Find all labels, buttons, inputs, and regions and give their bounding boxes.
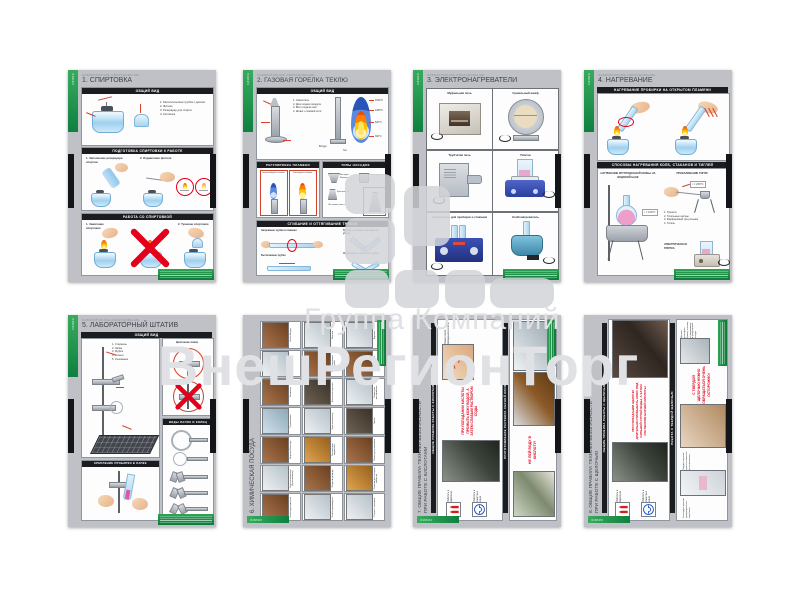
part-item: 4. Колпачок — [160, 112, 210, 116]
burner-tall-base-icon — [330, 139, 346, 144]
section-preparation: ПОДГОТОВКА СПИРТОВКИ К РАБОТЕ 1. Заполне… — [81, 147, 214, 211]
test-tube-icon — [451, 225, 458, 239]
temp-tick — [369, 122, 374, 123]
goggles-label: Работать в защитных очках — [642, 485, 652, 502]
watermark-company-line: Группа Компаний — [304, 303, 560, 337]
poster-spirit-lamp: ХИМИЯ ЛАБОРАТОРНОЕ ОБОРУДОВАНИЕ 1. СПИРТ… — [68, 70, 216, 282]
series-edge-label: ХИМИЯ — [588, 73, 591, 85]
weighing-photo — [680, 338, 710, 364]
edge-tab — [413, 399, 419, 453]
glassware-item: Склянки для сыпучих веществ — [344, 465, 385, 493]
step-label: Нагревание трубки в пламени — [261, 229, 303, 232]
section-general-view: ОБЩИЙ ВИД 1. Смеситель 2. Диск подачи во… — [256, 87, 389, 160]
gloves-pictogram — [446, 502, 461, 517]
series-edge-label: ХИМИЯ — [591, 518, 603, 521]
glassware-photo — [304, 437, 331, 463]
section-general-view: ОБЩИЙ ВИД 1. Металлическая трубка с диск… — [81, 87, 214, 146]
poster-title-line2: ПРИ РАБОТЕ С ЩЕЛОЧЬЮ — [595, 451, 600, 513]
carbonate-caption: На воздухе щелочи превращаются в карбона… — [683, 498, 692, 518]
glassware-item: Колба коническая (Эрленмейера) — [260, 465, 301, 493]
series-edge-band: ХИМИЯ — [584, 70, 594, 132]
poster-title: 6. ХИМИЧЕСКАЯ ПОСУДА — [250, 438, 256, 513]
clamp-stem — [183, 475, 208, 479]
hand-icon — [160, 172, 175, 182]
temperature-badge: t = 100°C — [642, 209, 658, 216]
section-flame-adjust: РЕГУЛИРОВКА ПЛАМЕНИ Несветящееся пламя С… — [256, 161, 320, 218]
power-cord-icon — [431, 263, 443, 270]
goggles-pictogram — [641, 502, 656, 517]
leader-line — [122, 425, 131, 429]
leader-line — [98, 96, 112, 100]
vent-grille — [444, 168, 456, 178]
gloves-pictogram — [615, 502, 630, 517]
rotate-arrow-icon — [287, 239, 297, 252]
leader-line — [261, 122, 270, 123]
series-edge-band: ХИМИЯ — [417, 516, 459, 523]
alkali-bottle-photo — [680, 470, 726, 496]
ring-stem — [189, 438, 208, 442]
series-edge-label: ХИМИЯ — [247, 73, 250, 85]
lamp-vessel-icon — [607, 139, 629, 155]
section-band: РАБОТА С ТВЕРДОЙ ЩЕЛОЧЬЮ — [670, 323, 675, 513]
edge-tab — [726, 154, 732, 208]
step-label: Вытягивание трубки — [261, 254, 301, 257]
blue-flame-icon — [270, 183, 277, 199]
clamp-stem — [185, 507, 208, 511]
glassware-label: Тигель — [373, 417, 376, 426]
series-edge-label: ХИМИЯ — [72, 318, 75, 330]
method-label: ЭЛЕКТРИЧЕСКАЯ ПЛИТКА — [664, 243, 692, 250]
furnace-tube — [467, 175, 482, 184]
glassware-label: Мерный цилиндр — [331, 469, 334, 489]
method-label: ПРОКАЛИВАНИЕ ТИГЛЯ — [664, 172, 720, 176]
test-tube-icon — [459, 225, 466, 239]
dial-knob — [533, 189, 538, 194]
section-clamp-types: ВИДЫ ЛАПОК И КОЛЕЦ — [162, 418, 214, 521]
glassware-item: Колба грушевидная — [302, 493, 343, 521]
lamp-cap-illustration — [134, 114, 149, 127]
series-edge-label: ХИМИЯ — [72, 73, 75, 85]
ring-icon — [110, 401, 123, 414]
section-band: РЕГУЛИРОВКА ПЛАМЕНИ — [257, 162, 319, 168]
poster-title-line2: ПРИ РАБОТЕ С КИСЛОТАМИ — [424, 447, 429, 513]
footer-lines — [720, 322, 725, 364]
flame-icon — [101, 240, 107, 249]
temperature-badge: t = 200°C — [690, 181, 706, 188]
step-label: 2. Поджигание фитиля — [140, 156, 176, 160]
gloves-label: Работать в перчатках — [447, 485, 453, 502]
glassware-photo — [304, 494, 331, 520]
stand-rod-icon — [102, 347, 104, 435]
heater-label: Сушильный шкаф — [493, 89, 558, 95]
section-band: КРЕПЛЕНИЕ ПРОБИРКИ В ЛАПКЕ — [82, 461, 159, 467]
ring-stem — [187, 457, 208, 461]
glassware-label: Кристаллизатор — [331, 412, 334, 430]
gas-label: Газ — [343, 149, 347, 152]
display-strip — [453, 242, 465, 245]
cabinet-stand — [513, 135, 539, 141]
goggles-icon — [473, 503, 486, 516]
method-label: НАГРЕВАНИЕ КРУГЛОДОННОЙ КОЛБЫ НА ВОДЯНОЙ… — [600, 172, 656, 179]
series-edge-label: ХИМИЯ — [420, 518, 432, 521]
temp-label: 1540°C — [375, 99, 383, 102]
publisher-footer — [718, 320, 727, 366]
burner-top-icon — [270, 98, 279, 106]
gloved-hand-photo — [513, 471, 555, 517]
edge-tab — [385, 399, 391, 453]
glassware-photo — [304, 465, 331, 491]
gloves-icon — [616, 503, 629, 516]
temp-label: 520°C — [375, 121, 382, 124]
glassware-item: Тигель — [344, 407, 385, 435]
temp-tick — [369, 100, 374, 101]
series-edge-band: ХИМИЯ — [588, 516, 630, 523]
glassware-item: Ступка с пестиком — [344, 493, 385, 521]
heater-cell: Сушильный шкаф — [492, 88, 559, 150]
series-edge-band: ХИМИЯ — [413, 70, 423, 132]
edge-tab — [584, 399, 590, 453]
lamp-base-line — [199, 190, 208, 191]
publisher-footer — [158, 514, 214, 525]
lamp-vessel-icon — [184, 252, 206, 268]
heater-label: Колбонагреватель — [493, 213, 558, 219]
stand-base-icon — [90, 435, 159, 454]
glassware-photo — [346, 465, 373, 491]
parts-list: 1. Тренога 2. Тигельные щипцы 3. Фарфоро… — [664, 211, 708, 226]
temp-tick — [369, 110, 374, 111]
hand-icon — [115, 163, 128, 172]
water-into-acid-warning: НЕ ЛЕЙ ВОДУ В КИСЛОТУ! — [514, 430, 552, 470]
power-cord-icon — [543, 257, 555, 264]
section-band: ОБЩИЙ ВИД — [257, 88, 388, 94]
section-stand-view: 1. Стержень 2. Лапка 3. Муфта 4. Кольцо … — [81, 338, 160, 458]
drying-cabinet-icon — [508, 99, 544, 135]
edge-tab — [243, 154, 249, 208]
furnace-shelf — [451, 120, 468, 122]
parts-list: 1. Металлическая трубка с диском 2. Фити… — [160, 100, 210, 116]
publisher-footer — [158, 269, 214, 280]
watermark-logo-block — [345, 218, 395, 264]
glassware-item: Склянки для жидкостей — [302, 436, 343, 464]
watermark-brand-line: ВнешРегионТорг — [158, 333, 639, 398]
leader-line — [682, 184, 690, 187]
heater-label: Муфельная печь — [427, 89, 492, 95]
section-working: РАБОТА СО СПИРТОВКОЙ 1. Зажигание спирто… — [81, 213, 214, 276]
flame-icon — [183, 183, 187, 189]
mantle-display — [527, 255, 539, 260]
glassware-item: Промывалка — [260, 407, 301, 435]
power-cord-icon — [718, 259, 730, 266]
section-heating-methods: НАГРЕВАНИЕ КРУГЛОДОННОЙ КОЛБЫ НА ВОДЯНОЙ… — [597, 168, 730, 276]
forbidden-cross-icon — [130, 226, 170, 270]
ring-icon — [173, 452, 187, 466]
cabinet-shelf — [514, 115, 537, 116]
burner-stem-icon — [271, 106, 280, 138]
series-edge-band: ХИМИЯ — [68, 315, 78, 377]
lamp-vessel-icon — [675, 139, 697, 155]
heater-label: Плитка — [493, 151, 558, 157]
flame-icon — [682, 126, 688, 136]
leader-line — [263, 100, 271, 104]
tube-liquid — [125, 489, 131, 499]
allowed-flame-badge — [176, 178, 194, 196]
burner-tall-stem-icon — [335, 97, 341, 141]
weighing-caption: Щелочь разъедает бумагу, поэтому ее взве… — [681, 321, 698, 338]
glassware-label: Колба коническая (Эрленмейера) — [289, 466, 295, 492]
dial-knob — [440, 247, 448, 255]
gloves-icon — [447, 503, 460, 516]
section-tube-in-clamp: КРЕПЛЕНИЕ ПРОБИРКИ В ЛАПКЕ — [81, 460, 160, 521]
dial-knob — [470, 247, 478, 255]
flame-type-label: Несветящееся пламя — [262, 172, 285, 175]
glassware-label: Воронка Бюхнера — [289, 440, 292, 460]
hand-icon — [98, 495, 114, 507]
edge-tab — [555, 399, 561, 453]
series-edge-label: ХИМИЯ — [417, 73, 420, 85]
poster-catalog-image: ХИМИЯ ЛАБОРАТОРНОЕ ОБОРУДОВАНИЕ 1. СПИРТ… — [0, 0, 800, 600]
section-band: ВИДЫ ЛАПОК И КОЛЕЦ — [163, 419, 213, 425]
flame-icon — [614, 126, 620, 136]
tripod-leg — [638, 240, 644, 260]
edge-tab — [584, 154, 590, 208]
muffle-furnace-icon — [439, 103, 481, 135]
glassware-photo — [262, 408, 289, 434]
series-edge-band: ХИМИЯ — [68, 70, 78, 132]
goggles-label: Работать в защитных очках — [473, 485, 483, 502]
parts-list: 1. Стержень 2. Лапка 3. Муфта 4. Кольцо … — [112, 343, 154, 361]
glassware-photo — [346, 494, 373, 520]
power-cord-icon — [431, 133, 443, 140]
glassware-item: Воронка Бюхнера — [260, 436, 301, 464]
goggles-pictogram — [472, 502, 487, 517]
part-item: 5. Основание — [112, 358, 154, 362]
hand-icon — [313, 241, 323, 248]
footer-lines — [160, 271, 212, 278]
lamp-base-line — [180, 190, 189, 191]
glassware-label: Склянки для жидкостей — [331, 437, 337, 463]
poster-title: 1. СПИРТОВКА — [82, 77, 132, 84]
test-tube-icon — [685, 106, 707, 133]
section-band: РАБОТА СО СПИРТОВКОЙ — [82, 214, 213, 220]
poster-heating: ХИМИЯ ЛАБОРАТОРНОЕ ОБОРУДОВАНИЕ 4. НАГРЕ… — [584, 70, 732, 282]
edge-tab — [210, 399, 216, 453]
orange-flame-icon — [299, 183, 306, 199]
glass-tube-icon — [267, 266, 311, 271]
mantle-heater-icon — [511, 235, 543, 256]
bottle-label — [699, 476, 707, 490]
poster-electric-heaters: ХИМИЯ ЛАБОРАТОРНОЕ ОБОРУДОВАНИЕ 3. ЭЛЕКТ… — [413, 70, 561, 282]
flame-type-label: Светящееся пламя — [291, 172, 314, 175]
hotplate-body-icon — [505, 180, 545, 197]
temp-label: 300°C — [375, 135, 382, 138]
glassware-photo — [262, 437, 289, 463]
stretch-arrow-icon — [279, 263, 295, 264]
hand-icon — [132, 498, 148, 510]
power-cord-icon — [499, 135, 511, 142]
leader-line — [140, 104, 141, 113]
glassware-item: Банка для реактивов — [344, 436, 385, 464]
publisher-footer — [674, 269, 730, 280]
glassware-label: Склянки для сыпучих веществ — [373, 466, 379, 492]
cabinet-interior — [514, 105, 537, 128]
section-band: ОБЩИЙ ВИД — [82, 88, 213, 94]
glassware-photo — [304, 408, 331, 434]
step-label: 2. Тушение спиртовки — [178, 222, 210, 226]
edge-tab — [68, 154, 74, 208]
series-edge-band: ХИМИЯ — [247, 516, 289, 523]
heater-cell: Муфельная печь — [426, 88, 493, 150]
gloves-label: Работать в перчатках — [616, 485, 622, 502]
burner-stem-icon — [300, 199, 307, 214]
dial-knob — [511, 189, 516, 194]
glassware-photo — [346, 408, 373, 434]
glassware-label: Колба круглодонная — [289, 496, 292, 519]
handling-photo — [680, 404, 726, 448]
flame-icon — [202, 183, 206, 189]
air-label: Воздух — [319, 145, 327, 148]
poster-title: 4. НАГРЕВАНИЕ — [598, 77, 653, 84]
electric-plate-icon — [694, 254, 720, 267]
power-cord-icon — [543, 191, 555, 198]
footer-lines — [160, 516, 212, 523]
goggles-icon — [642, 503, 655, 516]
lamp-vessel-icon — [92, 111, 124, 133]
heater-cell: Плитка — [492, 150, 559, 212]
part-item: 4. Тигель — [664, 222, 708, 226]
section-band: ПОДГОТОВКА СПИРТОВКИ К РАБОТЕ — [82, 148, 213, 154]
spirit-lamp-illustration — [92, 102, 122, 132]
nozzle-icon — [328, 189, 337, 200]
stand-rod-icon — [118, 471, 120, 513]
glassware-label: Колба грушевидная — [331, 496, 334, 518]
nozzle-icon — [328, 173, 340, 183]
watermark-logo-block — [345, 174, 395, 214]
glassware-label: Ступка с пестиком — [373, 497, 376, 518]
glassware-photo — [346, 437, 373, 463]
heater-cell: Колбонагреватель — [492, 212, 559, 276]
edge-tab — [210, 154, 216, 208]
leader-line — [116, 387, 124, 388]
poster-title: 2. ГАЗОВАЯ ГОРЕЛКА ТЕКЛЮ — [257, 77, 348, 84]
flame-box: Светящееся пламя — [289, 170, 317, 216]
parts-list: 1. Смеситель 2. Диск подачи воздуха 3. В… — [293, 99, 329, 114]
edge-tab — [68, 399, 74, 453]
section-band: ТИПЫ НАСАДОК — [323, 162, 388, 168]
lamp-cap-illustration — [192, 238, 203, 248]
lamp-vessel-icon — [143, 193, 163, 207]
tripod-leg — [710, 199, 715, 213]
furnace-opening — [449, 111, 470, 126]
temp-tick — [369, 136, 374, 137]
glassware-photo — [262, 465, 289, 491]
solid-alkali-warning: С ТВЕРДОЙ ЩЕЛОЧЬЮ НУЖНО ОБРАЩАТЬСЯ ОЧЕНЬ… — [681, 366, 723, 404]
part-item: 4. Шланг к газовой сети — [293, 110, 329, 114]
temp-label: 1280°C — [375, 109, 383, 112]
glassware-item: Мерный цилиндр — [302, 465, 343, 493]
series-edge-label: ХИМИЯ — [250, 518, 262, 521]
poster-title: 5. ЛАБОРАТОРНЫЙ ШТАТИВ — [82, 322, 178, 329]
storage-caption: Твердые щелочи хранят в емкостях из поли… — [683, 450, 692, 470]
dial-knob — [699, 259, 703, 263]
lamp-vessel-icon — [91, 193, 111, 207]
edge-tab — [726, 399, 732, 453]
motion-ring-icon — [618, 117, 634, 127]
flame-core-zone — [358, 121, 364, 135]
edge-tab — [243, 399, 249, 453]
test-tube-icon — [123, 474, 135, 501]
glassware-label: Промывалка — [289, 414, 292, 429]
burner-stem-icon — [271, 199, 278, 214]
glassware-item: Кристаллизатор — [302, 407, 343, 435]
lab-work-photo — [442, 440, 500, 482]
glassware-label: Банка для реактивов — [373, 438, 376, 461]
footer-lines — [676, 271, 728, 278]
heater-label: Трубчатая печь — [427, 151, 492, 157]
footer-lines — [505, 271, 557, 278]
edge-tab — [555, 154, 561, 208]
lab-work-photo — [612, 442, 668, 482]
round-flask-icon — [616, 205, 637, 226]
tongs-icon — [676, 192, 702, 196]
watermark-logo-block — [404, 186, 450, 246]
crucible-icon — [700, 191, 710, 199]
poster-title: 3. ЭЛЕКТРОНАГРЕВАТЕЛИ — [427, 77, 517, 84]
clamp-stem — [184, 491, 208, 495]
series-edge-band: ХИМИЯ — [243, 70, 253, 132]
lamp-vessel-icon — [94, 252, 116, 268]
flame-diagram — [351, 97, 371, 143]
section-tube-heating — [597, 93, 730, 161]
flame-box: Несветящееся пламя — [260, 170, 288, 216]
leader-line — [283, 140, 291, 141]
